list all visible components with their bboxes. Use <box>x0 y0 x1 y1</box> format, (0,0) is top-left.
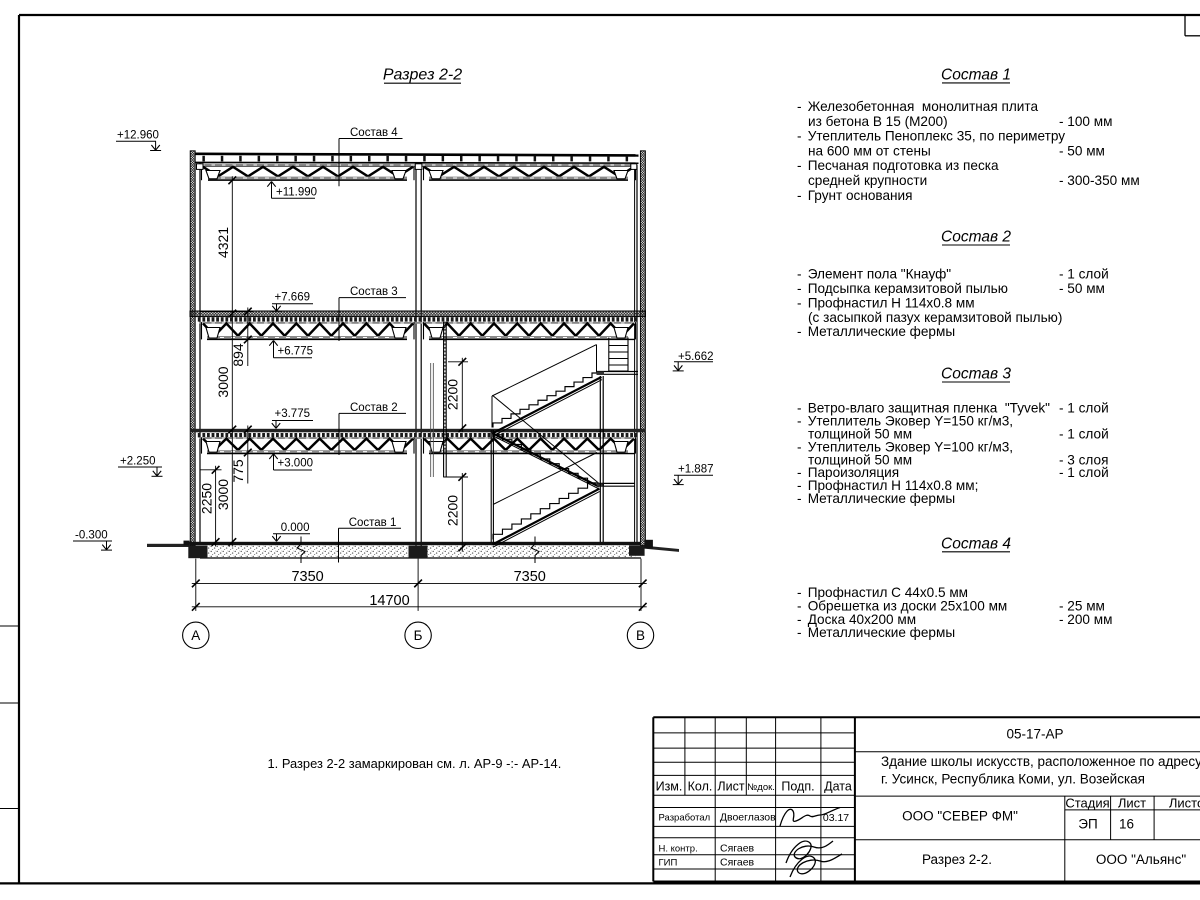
svg-text:Состав 2: Состав 2 <box>941 229 1011 246</box>
svg-text:Состав 4: Состав 4 <box>941 535 1011 552</box>
svg-text:-: - <box>797 281 802 296</box>
svg-text:1. Разрез 2-2 замаркирован см.: 1. Разрез 2-2 замаркирован см. л. АР-9 -… <box>268 756 562 771</box>
svg-text:-: - <box>797 188 802 203</box>
svg-text:+12.960: +12.960 <box>117 130 159 142</box>
svg-text:№док.: №док. <box>747 782 775 793</box>
svg-text:Металлические фермы: Металлические фермы <box>808 625 955 640</box>
svg-text:05-17-АР: 05-17-АР <box>1006 727 1063 742</box>
svg-text:2200: 2200 <box>445 379 461 410</box>
svg-text:Металлические фермы: Металлические фермы <box>808 491 955 506</box>
svg-text:0.000: 0.000 <box>281 522 310 534</box>
svg-text:Б: Б <box>414 628 423 643</box>
svg-text:Н. контр.: Н. контр. <box>659 844 698 855</box>
svg-text:Металлические фермы: Металлические фермы <box>808 324 955 339</box>
svg-text:г. Усинск, Республика Коми, ул: г. Усинск, Республика Коми, ул. Возейска… <box>881 772 1145 787</box>
svg-text:2250: 2250 <box>199 483 215 514</box>
svg-text:- 100 мм: - 100 мм <box>1059 114 1112 129</box>
svg-text:Здание школы искусств, располо: Здание школы искусств, расположенное по … <box>881 754 1200 769</box>
svg-text:Подп.: Подп. <box>781 780 814 794</box>
svg-text:- 200 мм: - 200 мм <box>1059 612 1112 627</box>
svg-text:Элемент пола "Кнауф": Элемент пола "Кнауф" <box>808 267 952 282</box>
svg-text:Песчаная подготовка из песка: Песчаная подготовка из песка <box>808 158 999 173</box>
svg-text:+6.775: +6.775 <box>278 346 314 358</box>
svg-text:-: - <box>797 414 802 429</box>
svg-text:- 1 слой: - 1 слой <box>1059 401 1109 416</box>
svg-text:+3.000: +3.000 <box>278 458 314 470</box>
svg-text:Железобетонная монолитная пли: Железобетонная монолитная плита <box>808 99 1039 114</box>
svg-text:(с засыпкой пазух керамзитовой: (с засыпкой пазух керамзитовой пылью) <box>808 310 1062 325</box>
svg-text:-: - <box>797 295 802 310</box>
svg-text:775: 775 <box>230 459 246 483</box>
svg-text:16: 16 <box>1119 817 1134 832</box>
svg-text:-: - <box>797 491 802 506</box>
svg-text:средней крупности: средней крупности <box>808 173 927 188</box>
svg-text:- 50 мм: - 50 мм <box>1059 281 1105 296</box>
svg-text:Сягаев: Сягаев <box>720 857 755 869</box>
svg-text:Грунт основания: Грунт основания <box>808 188 913 203</box>
svg-text:Стадия: Стадия <box>1065 796 1109 811</box>
svg-text:Разрез 2-2.: Разрез 2-2. <box>922 852 992 867</box>
svg-text:- 50 мм: - 50 мм <box>1059 143 1105 158</box>
svg-text:Лист: Лист <box>1118 796 1146 811</box>
svg-text:Состав 3: Состав 3 <box>941 366 1011 383</box>
svg-text:ООО "Альянс": ООО "Альянс" <box>1096 852 1186 867</box>
svg-text:Дата: Дата <box>824 780 852 794</box>
svg-text:7350: 7350 <box>514 569 546 585</box>
svg-text:-: - <box>797 625 802 640</box>
svg-text:+11.990: +11.990 <box>276 187 317 199</box>
svg-text:- 1 слой: - 1 слой <box>1059 427 1109 442</box>
svg-text:-: - <box>797 267 802 282</box>
svg-text:Состав 1: Состав 1 <box>941 67 1011 84</box>
svg-text:2200: 2200 <box>445 495 461 526</box>
svg-text:-: - <box>797 324 802 339</box>
svg-text:Профнастил Н 114х0.8 мм: Профнастил Н 114х0.8 мм <box>808 295 975 310</box>
svg-text:-: - <box>797 99 802 114</box>
svg-text:А: А <box>191 628 200 643</box>
svg-text:+2.250: +2.250 <box>120 456 156 468</box>
svg-text:4321: 4321 <box>215 227 231 258</box>
svg-text:Кол.: Кол. <box>688 780 713 794</box>
svg-text:Изм.: Изм. <box>656 780 683 794</box>
svg-text:ООО "СЕВЕР ФМ": ООО "СЕВЕР ФМ" <box>902 809 1018 824</box>
svg-text:Сягаев: Сягаев <box>720 843 755 855</box>
svg-text:3000: 3000 <box>215 366 231 397</box>
svg-text:Состав 4: Состав 4 <box>350 127 398 139</box>
svg-text:на 600 мм от стены: на 600 мм от стены <box>808 143 931 158</box>
svg-text:+7.669: +7.669 <box>275 292 311 304</box>
svg-text:из бетона В 15 (М200): из бетона В 15 (М200) <box>808 114 948 129</box>
svg-text:- 300-350 мм: - 300-350 мм <box>1059 173 1140 188</box>
svg-text:Разрез 2-2: Разрез 2-2 <box>383 67 462 84</box>
svg-text:-: - <box>797 129 802 144</box>
svg-text:ГИП: ГИП <box>659 858 678 869</box>
svg-text:Подсыпка керамзитовой пылью: Подсыпка керамзитовой пылью <box>808 281 1008 296</box>
svg-text:В: В <box>636 628 645 643</box>
svg-text:Состав 2: Состав 2 <box>350 402 398 414</box>
svg-text:7350: 7350 <box>291 569 323 585</box>
svg-text:+5.662: +5.662 <box>678 351 714 363</box>
svg-text:-: - <box>797 158 802 173</box>
svg-text:Состав 1: Состав 1 <box>349 517 397 529</box>
svg-text:Разработал: Разработал <box>659 813 711 824</box>
svg-text:+3.775: +3.775 <box>275 408 311 420</box>
svg-text:- 1 слой: - 1 слой <box>1059 267 1109 282</box>
svg-text:3000: 3000 <box>215 479 231 510</box>
svg-text:Лист: Лист <box>717 780 744 794</box>
svg-text:-: - <box>797 439 802 454</box>
svg-text:Листов: Листов <box>1169 796 1200 811</box>
svg-text:Утеплитель Пеноплекс 35, по пе: Утеплитель Пеноплекс 35, по периметру <box>808 129 1066 144</box>
svg-text:Состав 3: Состав 3 <box>350 286 398 298</box>
svg-text:14700: 14700 <box>369 593 409 609</box>
svg-text:-0.300: -0.300 <box>75 530 108 542</box>
svg-text:ЭП: ЭП <box>1078 817 1097 832</box>
svg-text:- 1 слой: - 1 слой <box>1059 465 1109 480</box>
svg-text:+1.887: +1.887 <box>678 464 714 476</box>
svg-text:Двоеглазов: Двоеглазов <box>720 812 776 824</box>
svg-text:894: 894 <box>230 343 246 367</box>
